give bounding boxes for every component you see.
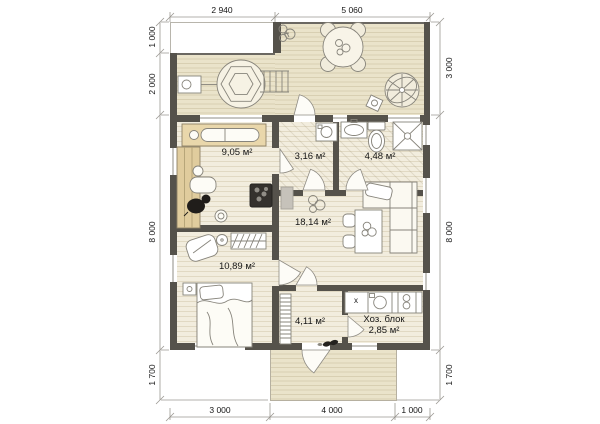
- dim-bottom-3: 1 000: [382, 404, 442, 416]
- window: [423, 273, 430, 290]
- wall: [325, 190, 346, 196]
- dim-top-2: 5 060: [322, 4, 382, 16]
- window: [352, 343, 377, 350]
- entrance-porch-deck: [270, 350, 397, 401]
- wall: [272, 286, 279, 343]
- wall: [279, 190, 303, 196]
- wall: [342, 337, 348, 343]
- floor-plan: 9,05 м² 3,16 м² 4,48 м² 18,14 м² 10,89 м…: [0, 0, 600, 424]
- wall: [342, 291, 348, 315]
- dim-right-3: 1 700: [443, 345, 455, 405]
- room-label-bedroom: 10,89 м²: [204, 261, 270, 272]
- room-label-bathroom: 4,48 м²: [350, 151, 410, 162]
- utility-area: 2,85 м²: [348, 325, 420, 336]
- room-label-sauna: 9,05 м²: [205, 147, 269, 158]
- wall: [170, 53, 177, 350]
- window: [423, 125, 430, 145]
- room-label-utility: Хоз. блок 2,85 м²: [348, 314, 420, 336]
- roof-canopy-area: [170, 22, 277, 55]
- wall: [423, 115, 430, 350]
- dim-bottom-1: 3 000: [190, 404, 250, 416]
- wall: [272, 122, 279, 148]
- dim-bottom-2: 4 000: [302, 404, 362, 416]
- dim-right-1: 3 000: [443, 38, 455, 98]
- wall: [317, 285, 423, 291]
- dim-left-4: 1 700: [146, 345, 158, 405]
- wall: [272, 174, 279, 260]
- wall: [279, 285, 296, 291]
- wall: [177, 225, 272, 232]
- terrace-deck-right: [275, 22, 430, 124]
- room-label-vestibule: 3,16 м²: [284, 151, 336, 162]
- dim-right-2: 8 000: [443, 202, 455, 262]
- room-label-living: 18,14 м²: [282, 217, 344, 228]
- utility-name: Хоз. блок: [348, 314, 420, 325]
- front-door-opening: [302, 343, 330, 350]
- window: [423, 178, 430, 213]
- window: [333, 115, 347, 122]
- dim-left-2: 2 000: [146, 54, 158, 114]
- terrace-door-opening: [294, 115, 315, 122]
- terrace-deck-left: [170, 53, 275, 124]
- dim-left-3: 8 000: [146, 202, 158, 262]
- room-label-hall: 4,11 м²: [284, 316, 336, 327]
- deck-post: [273, 22, 281, 53]
- window: [388, 115, 420, 122]
- dim-top-1: 2 940: [192, 4, 252, 16]
- wall: [368, 190, 423, 196]
- wall: [424, 22, 430, 115]
- window: [170, 148, 177, 175]
- window: [170, 255, 177, 282]
- counter-mark: x: [349, 296, 363, 305]
- window: [200, 115, 262, 122]
- window: [195, 343, 245, 350]
